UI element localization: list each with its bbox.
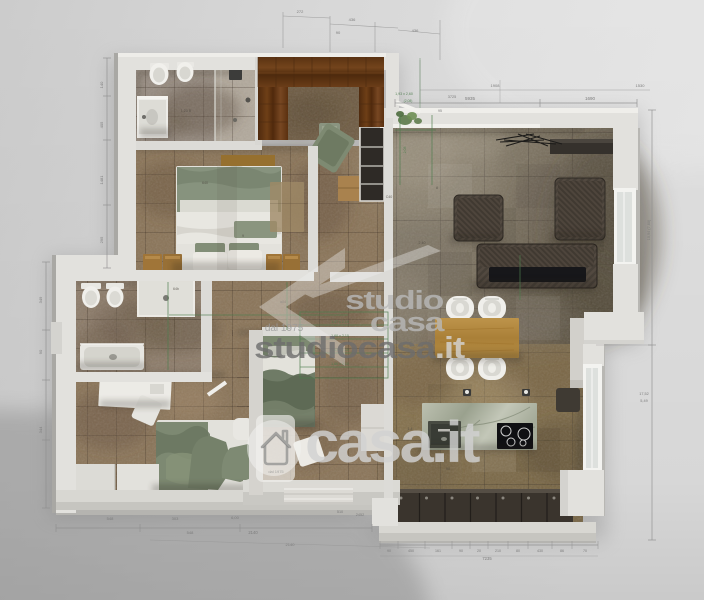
svg-text:5,49: 5,49 (640, 399, 647, 403)
svg-text:510: 510 (337, 510, 343, 514)
svg-text:9: 9 (242, 234, 244, 238)
svg-text:90: 90 (336, 30, 341, 35)
svg-text:6,00: 6,00 (231, 515, 240, 520)
svg-text:303: 303 (172, 516, 179, 521)
svg-text:1908: 1908 (491, 83, 501, 88)
svg-text:436: 436 (412, 28, 419, 33)
svg-text:17,52: 17,52 (639, 392, 649, 396)
svg-text:640: 640 (202, 181, 208, 185)
svg-text:295: 295 (99, 236, 104, 243)
svg-text:95: 95 (438, 109, 442, 113)
svg-text:C40: C40 (386, 195, 393, 199)
svg-text:(2,08): (2,08) (404, 99, 413, 103)
svg-text:90: 90 (387, 549, 391, 553)
svg-text:405: 405 (99, 121, 104, 128)
svg-text:1530: 1530 (636, 83, 646, 88)
svg-text:1,47 x 2,10: 1,47 x 2,10 (331, 320, 349, 324)
svg-text:1,93 x 2,60: 1,93 x 2,60 (395, 92, 413, 96)
svg-text:casa.it: casa.it (305, 410, 481, 475)
svg-text:1690: 1690 (585, 96, 596, 101)
svg-text:90: 90 (459, 549, 463, 553)
svg-text:548: 548 (187, 530, 194, 535)
svg-text:86: 86 (560, 549, 564, 553)
svg-text:64b: 64b (173, 287, 179, 291)
svg-text:272: 272 (297, 9, 304, 14)
svg-text:1,23 B: 1,23 B (181, 109, 192, 113)
svg-text:140: 140 (99, 81, 104, 88)
svg-text:2140: 2140 (286, 542, 296, 547)
svg-text:7235: 7235 (482, 556, 492, 561)
svg-text:436: 436 (349, 17, 356, 22)
svg-text:8: 8 (436, 186, 438, 190)
svg-text:3725: 3725 (448, 95, 456, 99)
svg-text:349: 349 (38, 296, 43, 303)
svg-text:90: 90 (38, 349, 43, 354)
svg-text:5935: 5935 (465, 96, 476, 101)
svg-text:2,08: 2,08 (403, 147, 407, 154)
svg-text:1481: 1481 (99, 175, 104, 185)
svg-text:70: 70 (583, 549, 587, 553)
svg-text:dal 1975: dal 1975 (268, 469, 284, 474)
svg-text:2,40: 2,40 (419, 241, 426, 245)
svg-text:430: 430 (537, 549, 543, 553)
svg-text:2140: 2140 (248, 530, 258, 535)
svg-text:548: 548 (107, 516, 114, 521)
svg-text:80: 80 (516, 549, 520, 553)
svg-text:210: 210 (495, 549, 501, 553)
svg-text:344: 344 (38, 426, 43, 433)
svg-text:161: 161 (435, 549, 441, 553)
svg-text:2452: 2452 (356, 513, 364, 517)
svg-text:10,94 (7,60): 10,94 (7,60) (647, 219, 651, 240)
svg-text:20: 20 (477, 549, 481, 553)
svg-text:studiocasa.it: studiocasa.it (254, 331, 465, 366)
svg-text:450: 450 (408, 549, 414, 553)
